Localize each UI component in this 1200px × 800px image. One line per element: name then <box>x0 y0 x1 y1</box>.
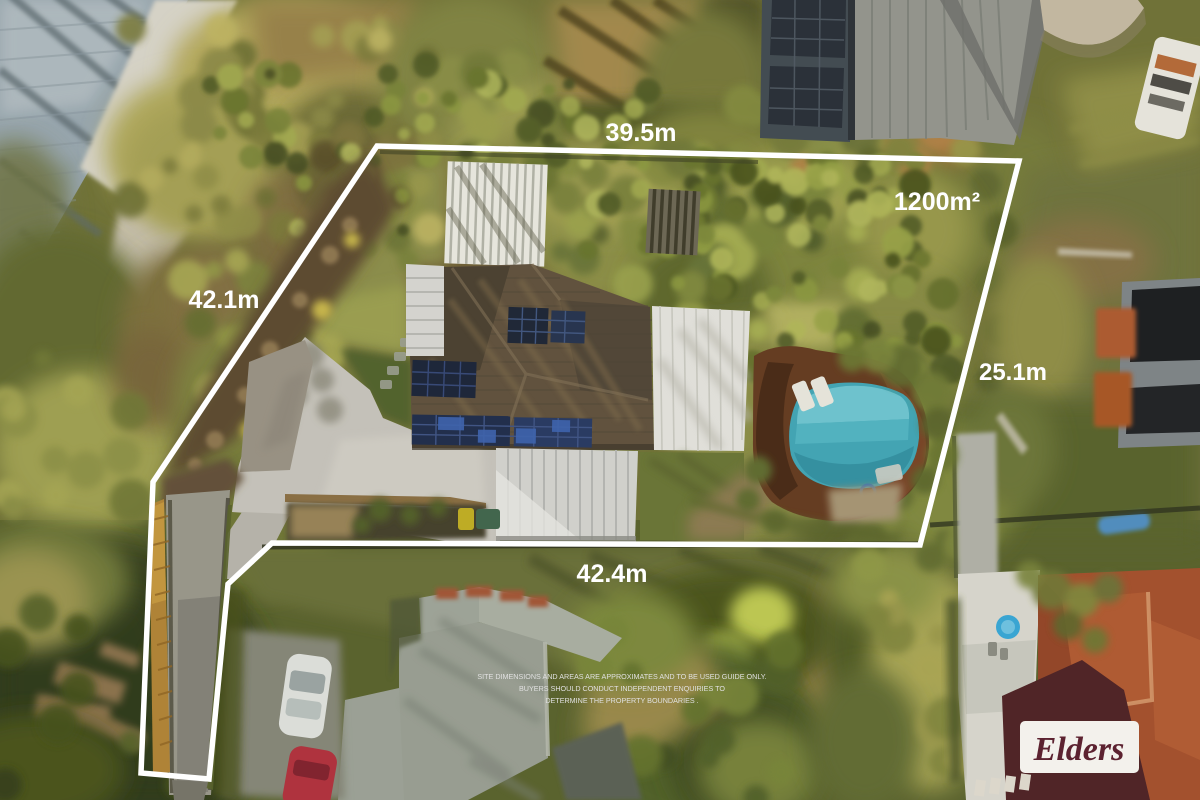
svg-text:25.1m: 25.1m <box>979 359 1047 386</box>
svg-text:42.1m: 42.1m <box>189 286 260 314</box>
svg-text:BUYERS SHOULD CONDUCT INDEPEND: BUYERS SHOULD CONDUCT INDEPENDENT ENQUIR… <box>519 684 725 693</box>
svg-text:DETERMINE THE PROPERTY BOUNDAR: DETERMINE THE PROPERTY BOUNDARIES . <box>545 696 698 705</box>
svg-text:39.5m: 39.5m <box>606 119 677 147</box>
svg-text:1200m²: 1200m² <box>894 188 980 216</box>
svg-text:Elders: Elders <box>1033 731 1125 768</box>
svg-text:42.4m: 42.4m <box>577 560 648 588</box>
svg-text:SITE DIMENSIONS AND AREAS ARE: SITE DIMENSIONS AND AREAS ARE APPROXIMAT… <box>477 672 766 681</box>
